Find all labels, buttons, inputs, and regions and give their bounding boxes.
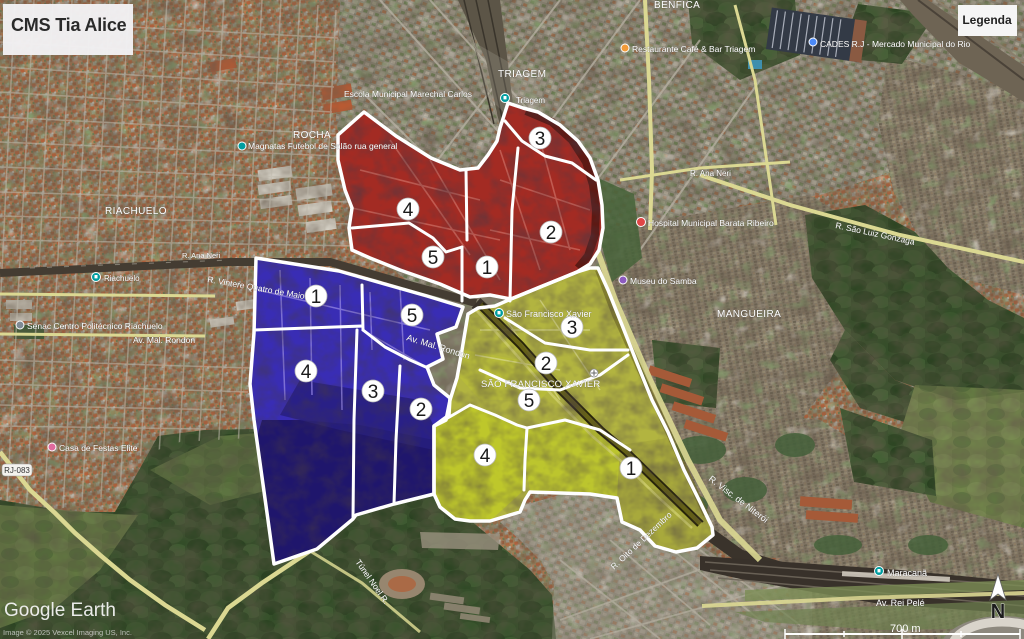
svg-text:Legenda: Legenda bbox=[962, 13, 1012, 27]
svg-text:CMS Tia Alice: CMS Tia Alice bbox=[11, 15, 127, 35]
svg-text:4: 4 bbox=[301, 362, 312, 383]
svg-text:BENFICA: BENFICA bbox=[654, 0, 700, 11]
svg-text:São Francisco Xavier: São Francisco Xavier bbox=[506, 309, 592, 319]
svg-text:2: 2 bbox=[416, 400, 427, 421]
svg-text:3: 3 bbox=[368, 382, 379, 403]
svg-text:1: 1 bbox=[626, 459, 637, 480]
svg-text:TRIAGEM: TRIAGEM bbox=[498, 69, 546, 80]
svg-text:ROCHA: ROCHA bbox=[293, 130, 331, 141]
svg-text:2: 2 bbox=[541, 354, 552, 375]
svg-text:5: 5 bbox=[524, 391, 535, 412]
svg-text:Escola Municipal Marechal Carl: Escola Municipal Marechal Carlos bbox=[344, 89, 472, 99]
svg-text:Museu do Samba: Museu do Samba bbox=[630, 276, 697, 286]
svg-text:4: 4 bbox=[403, 200, 414, 221]
svg-text:MANGUEIRA: MANGUEIRA bbox=[717, 309, 781, 320]
svg-text:Triagem: Triagem bbox=[516, 96, 545, 105]
svg-text:Image © 2025 Vexcel Imaging US: Image © 2025 Vexcel Imaging US, Inc. bbox=[3, 628, 132, 637]
svg-text:Maracanã: Maracanã bbox=[887, 568, 927, 578]
svg-text:RJ-083: RJ-083 bbox=[4, 466, 30, 475]
svg-text:2: 2 bbox=[546, 223, 557, 244]
svg-text:Senac Centro Politécnico Riach: Senac Centro Politécnico Riachuelo bbox=[27, 321, 163, 331]
svg-text:Av. Rei Pelé: Av. Rei Pelé bbox=[876, 598, 925, 608]
svg-text:5: 5 bbox=[428, 248, 439, 269]
svg-text:Restaurante Café & Bar Triagem: Restaurante Café & Bar Triagem bbox=[632, 44, 755, 54]
svg-text:700 m: 700 m bbox=[890, 623, 921, 635]
svg-text:1: 1 bbox=[311, 287, 322, 308]
svg-text:N: N bbox=[991, 601, 1005, 623]
svg-text:R. Ana Neri: R. Ana Neri bbox=[690, 169, 731, 178]
svg-text:R. Ana Neri: R. Ana Neri bbox=[182, 251, 221, 260]
svg-text:Magnatas Futebol de Salão rua: Magnatas Futebol de Salão rua general bbox=[248, 141, 397, 151]
svg-text:1: 1 bbox=[482, 258, 493, 279]
svg-text:3: 3 bbox=[567, 318, 578, 339]
svg-text:RIACHUELO: RIACHUELO bbox=[105, 206, 167, 217]
svg-text:Google Earth: Google Earth bbox=[4, 600, 116, 621]
svg-text:Riachuelo: Riachuelo bbox=[104, 274, 140, 283]
svg-text:4: 4 bbox=[480, 446, 491, 467]
svg-text:5: 5 bbox=[407, 306, 418, 327]
svg-text:Casa de Festas Elite: Casa de Festas Elite bbox=[59, 443, 138, 453]
svg-text:Hospital Municipal Barata Ribe: Hospital Municipal Barata Ribeiro bbox=[648, 218, 774, 228]
svg-text:Av. Mal. Rondon: Av. Mal. Rondon bbox=[133, 335, 195, 345]
svg-text:3: 3 bbox=[535, 129, 546, 150]
svg-text:CADES R.J - Mercado Municipal: CADES R.J - Mercado Municipal do Rio bbox=[820, 39, 970, 49]
svg-text:SÃO FRANCISCO XAVIER: SÃO FRANCISCO XAVIER bbox=[481, 379, 600, 390]
